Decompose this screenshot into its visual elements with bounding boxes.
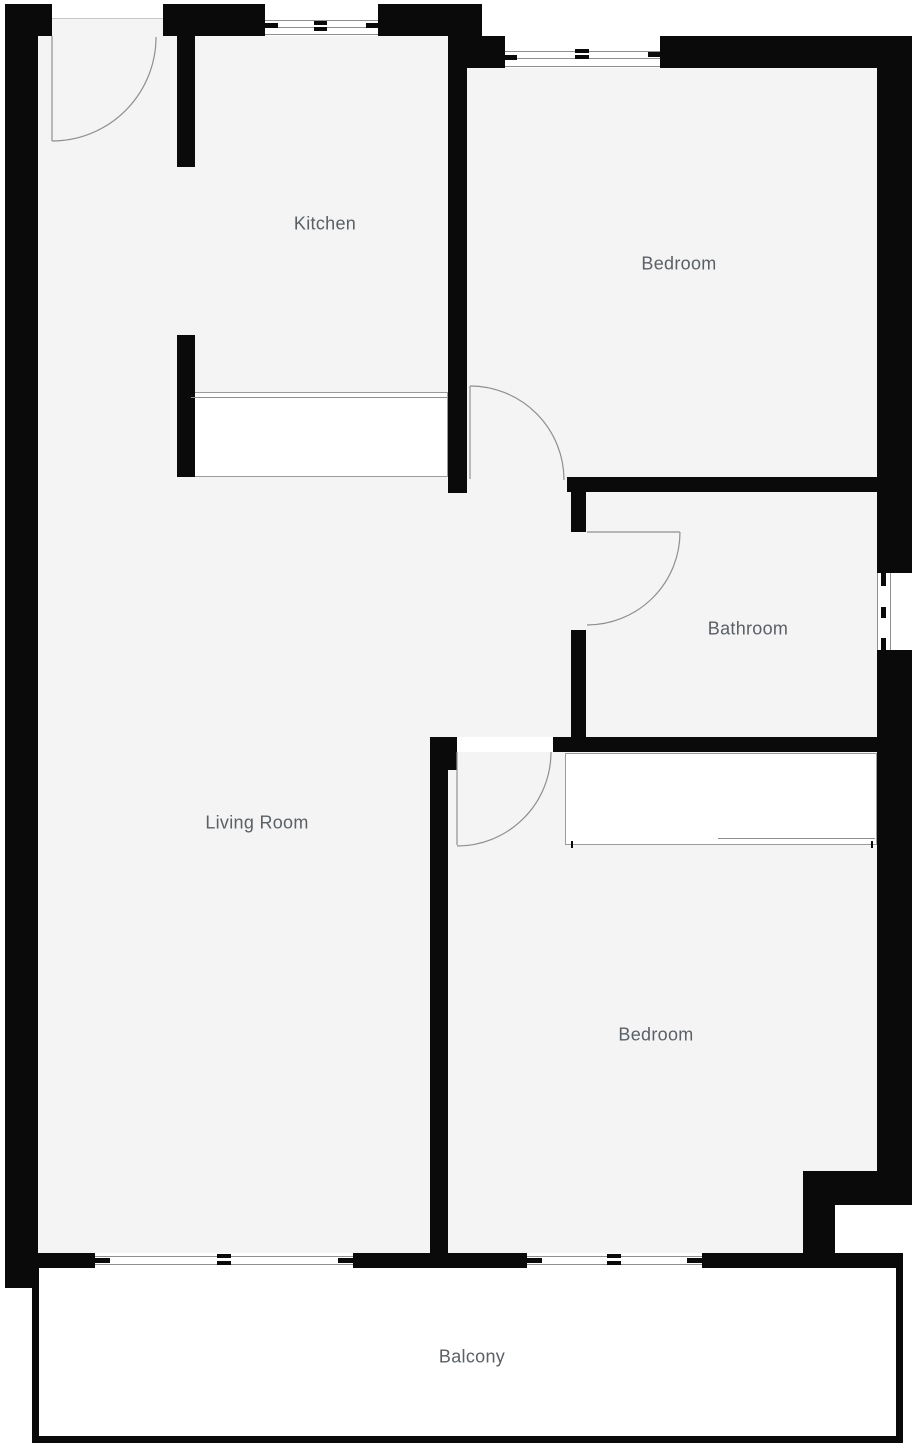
room-label-bathroom: Bathroom — [708, 619, 788, 640]
room-label-kitchen: Kitchen — [294, 214, 356, 235]
room-label-balcony: Balcony — [439, 1347, 505, 1368]
door-swing-layer — [0, 0, 915, 1448]
floor-plan: Kitchen Bedroom Bathroom Living Room Bed… — [0, 0, 915, 1448]
room-label-living-room: Living Room — [205, 813, 308, 834]
room-label-bedroom-2: Bedroom — [618, 1025, 693, 1046]
entry-door-arc — [52, 37, 156, 141]
bedroom1-door-arc — [470, 386, 564, 480]
room-label-bedroom-1: Bedroom — [641, 254, 716, 275]
bedroom2-door-arc — [457, 752, 551, 846]
bathroom-door-arc — [587, 532, 680, 625]
